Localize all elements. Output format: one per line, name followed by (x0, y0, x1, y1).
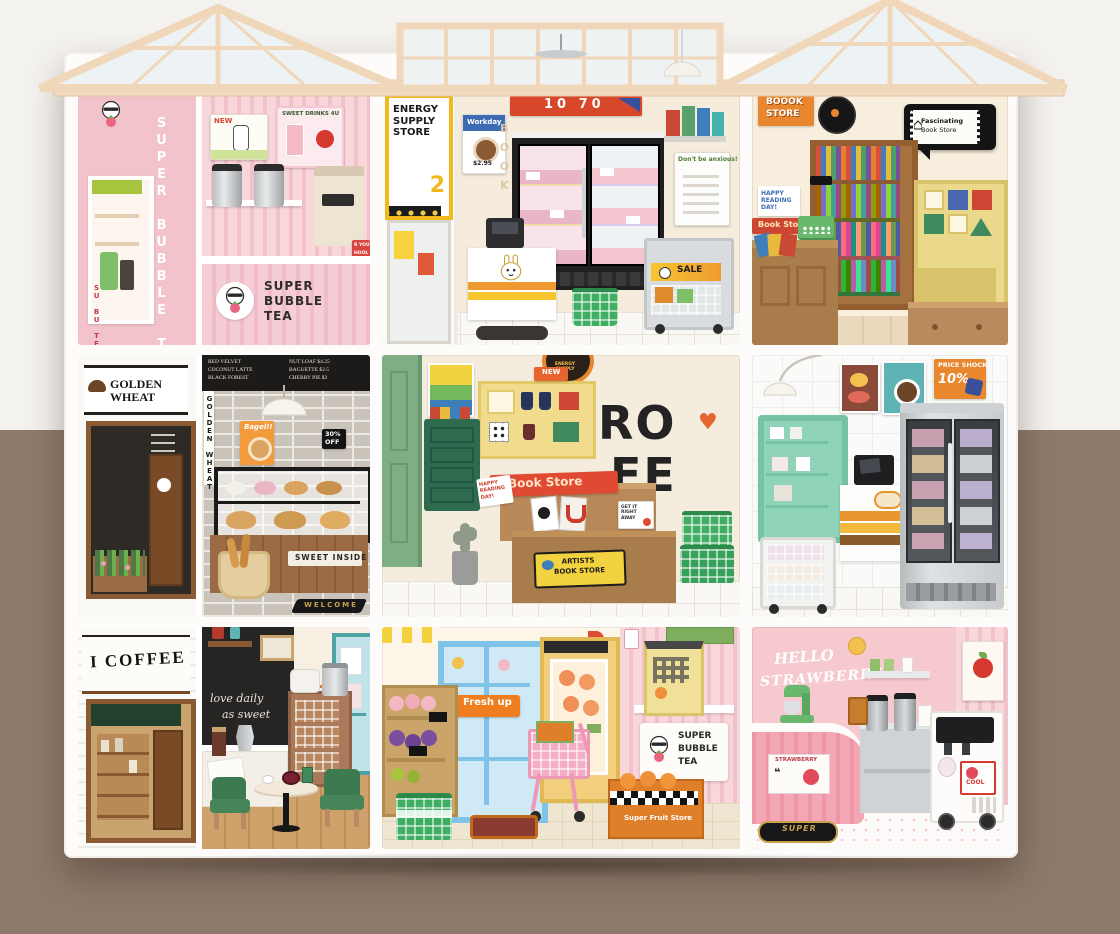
peach (389, 696, 404, 711)
cafe-table (254, 775, 318, 835)
bread-loaf (226, 511, 256, 529)
door-panel-line (390, 371, 408, 451)
cactus-plant (460, 523, 470, 553)
hello-script-line: HELLO (774, 647, 835, 667)
wire-trolley (760, 537, 836, 609)
shelf-bottle (129, 760, 137, 773)
coffee-grinder (212, 727, 226, 756)
red-dot-stamp (643, 518, 651, 526)
sticker-mascot (803, 769, 819, 785)
ink-bottle (523, 424, 535, 440)
book (712, 112, 724, 136)
cabinet-item (770, 427, 784, 439)
machine-spout (962, 743, 970, 755)
mixer-base (780, 715, 814, 723)
ink-bottle (539, 392, 551, 410)
i-coffee-sign-text: I COFFEE (90, 649, 187, 672)
energy-store-sign-number: 2 (430, 174, 445, 198)
dessert-poster (840, 363, 880, 413)
counter-panel (796, 266, 826, 306)
green-armchair (320, 769, 364, 827)
unit-cell (487, 390, 515, 414)
sweet-inside-plaque: SWEET INSIDE (288, 551, 362, 566)
unit-base (918, 268, 996, 302)
ground-shadow (70, 852, 1020, 878)
book (697, 108, 710, 136)
counter-brand-line: BUBBLE (264, 295, 323, 308)
peach (405, 694, 420, 709)
price-shock-line: PRICE SHOCK (938, 362, 987, 369)
room-golden-wheat-bakery: GOLDEN WHEAT RED VELVET (78, 355, 370, 617)
red-box (559, 392, 579, 410)
workday-price: $2.95 (473, 161, 492, 167)
basket-band (396, 810, 452, 818)
fridge-base-vent (906, 583, 996, 601)
cart-sale-strip: SALE (651, 263, 721, 281)
fridge-glass-door (954, 419, 1000, 563)
wall-vertical-book-text: BOOK (498, 122, 510, 242)
window-door (153, 730, 183, 830)
chair-seat (320, 795, 364, 810)
rabbit-mascot-icon (498, 254, 524, 282)
ink-bottle (521, 392, 533, 410)
blue-stamp (965, 378, 984, 397)
under-shelf (864, 769, 930, 773)
fridge-handle (948, 443, 952, 523)
cubby (948, 190, 968, 210)
cart-goods (677, 289, 693, 303)
machine-spout (944, 743, 952, 755)
trolley-tier (766, 584, 824, 598)
anxious-poster-title: Don't be anxious! (678, 157, 738, 163)
chair-leg (241, 813, 246, 829)
bubble-sign-tail (918, 148, 930, 160)
menu-item: COCONUT LATTE (208, 367, 285, 373)
sticker-quote-mark: ❝ (774, 767, 780, 779)
price-shock-poster: PRICE SHOCK 10% (934, 359, 986, 399)
green-door (382, 355, 422, 567)
sticker-girl (966, 767, 978, 779)
cabinet-item (772, 457, 788, 471)
room-i-coffee: I COFFEE love daily as sweet (78, 627, 370, 849)
mixer-column (802, 693, 810, 717)
lime (391, 768, 404, 781)
door-rug (470, 815, 538, 839)
window-machine (100, 252, 118, 290)
soft-serve-cup (938, 757, 956, 777)
counter-brand-line: TEA (264, 310, 293, 323)
crate-label: Super Fruit Store (624, 815, 692, 823)
curved-counter: STRAWBERRY ❝ (752, 723, 864, 824)
shopping-basket (680, 545, 734, 583)
fridge-glass-door (906, 419, 952, 563)
cabinet-item (790, 427, 802, 439)
storefront-column: ENERGY SUPPLY STORE 2 (382, 88, 458, 345)
golden-wheat-sign: GOLDEN WHEAT (84, 365, 188, 415)
window-machine (120, 260, 134, 290)
cool-sticker: COOL (960, 761, 996, 795)
table-base (272, 825, 300, 832)
white-bottle (902, 657, 913, 673)
chalk-script-line: as sweet (222, 709, 270, 721)
artists-sticker-line: ARTISTS (562, 557, 595, 566)
bubble-tea-facade: SUPER BUBBLE TEA SU BU TE (78, 88, 202, 345)
room-energy-supply-store: ENERGY SUPPLY STORE 2 10 70 Workday $ (382, 88, 740, 345)
bubble-tea-interior: NEW SWEET DRINKS 4U R YOUR HOOL (202, 88, 370, 345)
drink-sticker-icon (624, 629, 639, 649)
golden-wheat-sign-text: GOLDEN WHEAT (110, 378, 186, 404)
table-stem (283, 793, 289, 827)
green-cup (884, 659, 894, 671)
grape (389, 730, 405, 746)
machine-wheel (938, 813, 955, 830)
welcome-mat-text: WELCOME (304, 602, 358, 610)
anxious-poster: Don't be anxious! (674, 152, 730, 226)
menu-board-lines (99, 434, 145, 504)
cart-wheel (655, 324, 665, 334)
amber-jar (848, 697, 868, 725)
chair-leg (354, 809, 359, 827)
machine-wheel (979, 813, 996, 830)
poster-new-label: NEW (214, 118, 232, 126)
crate-orange (620, 773, 636, 789)
wooden-counter: ARTISTS BOOK STORE (512, 531, 676, 603)
shopping-basket (396, 793, 452, 840)
coffee-facade: I COFFEE (78, 627, 202, 849)
chair-leg (325, 809, 330, 827)
artists-sticker-line: BOOK STORE (554, 567, 605, 576)
poster-new-drink: NEW (210, 114, 268, 160)
cabinet-shelf (766, 505, 828, 508)
sticker-title: STRAWBERRY (775, 758, 817, 764)
dice (489, 422, 509, 442)
checker-band (610, 791, 698, 805)
drawer-knob (976, 324, 982, 330)
store-glass-door (387, 220, 451, 344)
energy-store-sign: ENERGY SUPPLY STORE 2 (385, 94, 453, 220)
sticker-doodle (542, 560, 554, 570)
book-art-blob (538, 507, 550, 519)
coffee-interior: love daily as sweet (202, 627, 370, 849)
drawer (430, 487, 474, 503)
juicer-machine (644, 641, 704, 716)
pendant-lamp-icon (254, 385, 314, 419)
happy-reading-card: HAPPY READING DAY! (758, 186, 800, 216)
price-tag (600, 168, 614, 176)
book-art-u (566, 505, 586, 523)
floor-mat-text: SUPER (782, 825, 817, 834)
discount-line: OFF (325, 439, 339, 446)
door-mullion-v (484, 647, 489, 805)
bakery-interior: RED VELVET COCONUT LATTE BLACK FOREST NU… (202, 355, 370, 617)
corner-sign-line: STORE (766, 110, 799, 120)
drawer-knob (932, 324, 938, 330)
trolley-wheel (769, 604, 779, 614)
sale-mascot-dot (659, 267, 671, 279)
door-poster-bits (418, 253, 434, 275)
cactus-arm (470, 527, 477, 541)
sweet-inside-text: SWEET INSIDE (295, 554, 367, 562)
promo-cart: SALE (644, 238, 734, 330)
door-logo (157, 478, 171, 492)
wall-letters-line: RO (598, 399, 677, 449)
bread-loaf (274, 511, 306, 529)
fresh-up-sign: Fresh up (454, 695, 520, 717)
cactus-pot (452, 551, 478, 585)
counter-brand-line: SUPER (264, 280, 314, 293)
peach (559, 670, 575, 686)
cooler-top-band (544, 641, 608, 653)
checkout-counter (468, 248, 556, 320)
window-awning (92, 180, 142, 194)
chair-leg (214, 813, 219, 829)
coffee-cup (262, 775, 274, 784)
oval-floor-mat: SUPER (758, 821, 838, 843)
pink-shopping-cart (524, 719, 596, 823)
juicer-orange (655, 687, 667, 699)
bubble-tea-side-small-text: SU BU TE (92, 284, 100, 338)
wall-sign-line: SUPER (678, 732, 711, 742)
donut-art (248, 437, 272, 461)
menu-item: BLACK FOREST (208, 375, 285, 381)
yellow-wall-unit (478, 381, 596, 459)
book (666, 110, 680, 136)
crate-orange (640, 771, 656, 787)
window-shelf (95, 242, 139, 246)
new-flag: NEW (534, 367, 568, 381)
counter-stripe (468, 292, 556, 300)
poster-sweet-title: SWEET DRINKS 4U (282, 112, 339, 118)
pastry-display-case (214, 467, 370, 543)
green-cup (870, 659, 880, 671)
chair-seat (210, 799, 250, 813)
i-coffee-sign: I COFFEE (82, 635, 190, 694)
tomato-leaf (979, 652, 987, 658)
berry-bowl (282, 771, 300, 785)
price-tag (626, 216, 640, 224)
case-shelf (218, 501, 360, 504)
steel-prep-table (860, 723, 934, 813)
tomato-art (973, 658, 993, 678)
toaster (290, 669, 320, 693)
wall-sign-line: BUBBLE (678, 745, 718, 755)
price-shock-line: 10% (938, 373, 969, 387)
trolley-wheel (817, 604, 827, 614)
cubby (924, 190, 944, 210)
price-tag (526, 172, 540, 180)
peach (583, 700, 599, 716)
silver-fridge (900, 403, 1004, 609)
moka-pot (236, 725, 254, 751)
door-contents (960, 429, 992, 549)
bookstore-banner-text: Book Store (508, 475, 583, 491)
poster-green-band (211, 150, 267, 159)
typewriter (798, 216, 834, 238)
black-kettle (866, 695, 888, 731)
coffee-window (86, 699, 196, 843)
glass-roof (18, 0, 1102, 102)
coffee-urn (254, 164, 284, 207)
workday-title: Workday (467, 119, 501, 127)
cabinet-shelf (766, 473, 828, 476)
cart-sale-text: SALE (677, 266, 702, 276)
bubble-sign-panel: Fascinating Book Store (910, 110, 980, 144)
happy-reading-text: HAPPY READING DAY! (761, 190, 797, 212)
artists-sticker: ARTISTS BOOK STORE (533, 549, 626, 588)
peach (421, 696, 436, 711)
menu-item: NUT LOAF $4.25 (289, 359, 366, 365)
green-armchair (210, 777, 250, 829)
coffee-urn (212, 164, 242, 207)
heart-doodle-icon: ♥ (698, 411, 718, 435)
black-kettle (894, 693, 916, 731)
energy-store-sign-text: ENERGY SUPPLY STORE (393, 104, 443, 139)
cash-register (854, 455, 894, 485)
shelf-tag (810, 176, 832, 185)
red-coffee-tin (212, 627, 224, 639)
counter-logo (874, 491, 902, 509)
bagel-poster-title: Bagel!! (244, 424, 273, 432)
flower-dot (125, 565, 130, 570)
room-convenience-corner: PRICE SHOCK 10% (752, 355, 1008, 617)
poster-sweet-drinks: SWEET DRINKS 4U (276, 106, 344, 168)
happy-reading-card: HAPPY READING DAY! (476, 475, 514, 507)
door-poster-bits (394, 231, 414, 259)
partial-poster-text: R YOUR (354, 244, 370, 249)
price-tag-black (429, 712, 447, 722)
happy-reading-text: HAPPY READING DAY! (479, 478, 511, 501)
menu-item: CHERRY PIE $3 (289, 375, 366, 381)
book-cell (553, 422, 579, 442)
bread-basket (218, 551, 270, 599)
lime (407, 770, 420, 783)
shelf-bottle (101, 740, 109, 752)
price-tag (550, 210, 564, 218)
cactus-arm (453, 531, 460, 545)
door-panel (149, 454, 183, 586)
framed-picture (260, 635, 294, 661)
yellow-display-unit (914, 180, 1008, 306)
awning-stripes (382, 627, 440, 643)
discount-tag: 30% OFF (322, 429, 346, 449)
pastry (226, 481, 246, 495)
cabinet-item (774, 485, 792, 501)
wall-shelf (864, 671, 930, 678)
fruit-crate: Super Fruit Store (608, 779, 704, 839)
room-fresh-fruit-store: Fresh up (382, 627, 740, 849)
bakery-facade: GOLDEN WHEAT (78, 355, 202, 617)
drawer (430, 447, 474, 463)
tea-machine (314, 166, 364, 246)
cool-text: COOL (966, 780, 984, 786)
shopping-basket (572, 288, 618, 326)
cubby (924, 214, 944, 234)
cubby (948, 214, 968, 234)
fridge-handles (582, 168, 586, 238)
poster-new-bottle-art (233, 125, 249, 151)
poster-art (848, 391, 870, 403)
pendant-lamp-icon (758, 355, 828, 401)
peach (563, 696, 579, 712)
mixer-bowl (784, 701, 800, 715)
drawer (430, 467, 474, 483)
sign-marquee-dots (389, 206, 441, 216)
grape (421, 730, 437, 746)
strawberry-quote-sticker: STRAWBERRY ❝ (768, 754, 830, 794)
room-fascinating-book-store: BOOOK STORE Fascinating Book Store (752, 88, 1008, 345)
house-icon (914, 120, 922, 130)
wall-bookshelf (664, 98, 726, 142)
door-panel-line (390, 463, 408, 543)
door-fruit (452, 657, 464, 669)
espresso-machine (322, 663, 348, 696)
smiley-doodle-icon (848, 637, 866, 655)
room-book-store: ENERGY SUPPLY RO FE ♥ NEW (382, 355, 740, 617)
pastry (284, 481, 308, 495)
counter-panel (760, 266, 790, 306)
cabinet-item (796, 457, 810, 471)
hanging-shop-tag: GOLDEN WHEAT (204, 391, 214, 485)
bubble-tea-side-sign: SUPER BUBBLE TEA (154, 116, 168, 321)
price-tag-black (409, 746, 427, 756)
typewriter-keys (802, 226, 830, 234)
door-mat (476, 326, 548, 340)
peach (579, 674, 595, 690)
window-shelf (95, 214, 139, 218)
crate-orange (660, 773, 676, 789)
bread-loaf (320, 511, 350, 529)
bagel-poster: Bagel!! (240, 421, 274, 465)
window-header (91, 704, 181, 726)
drawer (430, 427, 474, 443)
flower-dot (101, 561, 106, 566)
discount-line: 30% (325, 431, 341, 438)
cart-fruitbox (536, 721, 574, 743)
shelf-board (664, 136, 726, 142)
poster-art (850, 373, 868, 387)
new-flag-text: NEW (542, 369, 560, 377)
ice-cream-machine: COOL (930, 711, 1004, 823)
door-contents (912, 429, 944, 549)
trolley-tier (766, 544, 824, 560)
stand-tier (387, 758, 445, 762)
wall-shelf (208, 641, 252, 647)
cart-wheel (713, 324, 723, 334)
chalk-script-line: love daily (210, 693, 263, 705)
bread-icon (88, 380, 106, 392)
rattan-door (295, 726, 339, 748)
book (682, 106, 695, 136)
teal-cup (230, 627, 240, 639)
low-cabinet (908, 302, 1008, 345)
trolley-tier (766, 564, 824, 580)
vinyl-label (831, 109, 839, 117)
tomato-poster (962, 641, 1004, 701)
shelf-bottle (115, 738, 123, 752)
menu-card (302, 767, 313, 783)
machine-top-black (936, 717, 994, 743)
menu-item: BAGUETTE $2.5 (289, 367, 366, 373)
bakery-window (86, 421, 196, 599)
pastry (254, 481, 276, 495)
register-screen (859, 458, 880, 474)
stand-mixer (778, 685, 818, 725)
green-triangle-sticker (970, 218, 992, 236)
coffee-cup-art (894, 379, 920, 405)
wall-sign-line: TEA (678, 758, 697, 768)
door-fruit (498, 659, 510, 671)
dollhouse-body: SUPER BUBBLE TEA SU BU TE NEW (64, 52, 1018, 858)
